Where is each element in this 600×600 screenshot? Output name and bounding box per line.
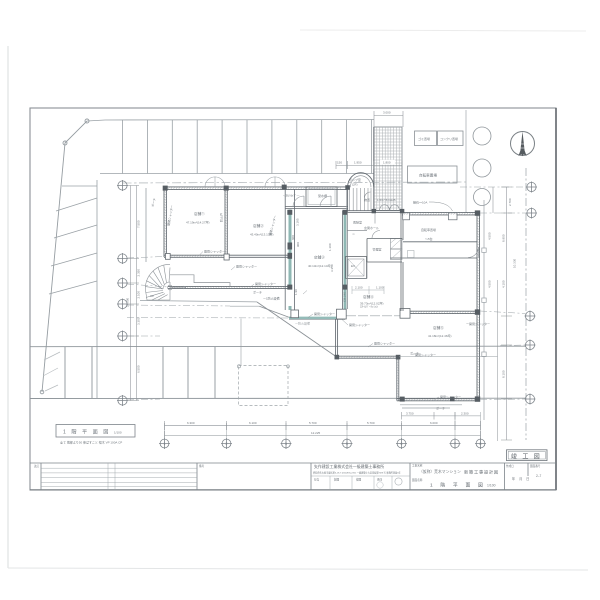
svg-text:4.500: 4.500 bbox=[488, 280, 492, 288]
svg-text:6.100: 6.100 bbox=[249, 421, 257, 425]
svg-text:係印: 係印 bbox=[377, 478, 383, 482]
svg-text:1.90: 1.90 bbox=[294, 289, 298, 295]
svg-text:灬: 灬 bbox=[352, 231, 355, 235]
svg-text:検図: 検図 bbox=[356, 478, 362, 482]
svg-text:縁石〜10A: 縁石〜10A bbox=[413, 200, 427, 205]
svg-text:コンクリ置場: コンクリ置場 bbox=[440, 136, 458, 141]
svg-text:年 月 日: 年 月 日 bbox=[512, 476, 531, 481]
svg-text:40.13m²(12.14坪): 40.13m²(12.14坪) bbox=[308, 263, 332, 268]
svg-text:4.500: 4.500 bbox=[488, 232, 492, 240]
svg-text:開閉シャッター: 開閉シャッター bbox=[236, 264, 257, 269]
svg-text:製図: 製図 bbox=[334, 478, 340, 482]
svg-text:2.100: 2.100 bbox=[137, 291, 141, 299]
svg-text:ポーチ: ポーチ bbox=[253, 290, 262, 295]
svg-text:7.500: 7.500 bbox=[137, 220, 141, 228]
svg-text:1/100: 1/100 bbox=[487, 484, 496, 488]
svg-text:6.000: 6.000 bbox=[430, 421, 438, 425]
svg-text:5.700: 5.700 bbox=[309, 421, 317, 425]
svg-text:(2F): (2F) bbox=[352, 183, 358, 187]
svg-text:2.300: 2.300 bbox=[461, 411, 469, 415]
svg-text:備考: 備考 bbox=[199, 464, 205, 468]
svg-text:5.700: 5.700 bbox=[367, 421, 375, 425]
svg-text:2.100: 2.100 bbox=[355, 286, 363, 290]
svg-text:矢作建設工業株式会社一級建築士事務所: 矢作建設工業株式会社一級建築士事務所 bbox=[314, 464, 384, 469]
svg-text:2.700: 2.700 bbox=[508, 198, 512, 206]
svg-text:2: 2 bbox=[226, 442, 228, 446]
svg-text:3: 3 bbox=[285, 442, 287, 446]
svg-text:8.900: 8.900 bbox=[502, 234, 506, 242]
svg-text:防火戸: 防火戸 bbox=[219, 213, 224, 222]
svg-text:3.300: 3.300 bbox=[137, 317, 141, 325]
svg-text:900: 900 bbox=[296, 242, 300, 247]
svg-text:全て 端部より50 伸ばすこと 幅木 VP 100A C: 全て 端部より50 伸ばすこと 幅木 VP 100A CP bbox=[60, 440, 122, 445]
svg-text:店舗②: 店舗② bbox=[253, 223, 264, 228]
svg-text:2–7: 2–7 bbox=[536, 474, 542, 478]
svg-text:開閉シャッター: 開閉シャッター bbox=[314, 311, 335, 316]
svg-text:新築工事設計図: 新築工事設計図 bbox=[464, 469, 499, 476]
svg-text:改訂: 改訂 bbox=[34, 464, 40, 468]
svg-text:41.18m²(12.46坪): 41.18m²(12.46坪) bbox=[428, 333, 452, 338]
svg-text:2.350: 2.350 bbox=[137, 269, 141, 277]
svg-text:受水槽: 受水槽 bbox=[318, 193, 327, 198]
svg-text:（仮称）荒木マンション: （仮称）荒木マンション bbox=[419, 469, 461, 474]
svg-text:ポンプ室: ポンプ室 bbox=[349, 177, 361, 182]
svg-text:3.000: 3.000 bbox=[383, 111, 391, 115]
svg-text:担当: 担当 bbox=[314, 478, 320, 482]
svg-text:図面番号: 図面番号 bbox=[530, 464, 541, 468]
svg-text:ｰﾒﾀﾙﾊﾗｲﾄﾞｰｰ: ｰﾒﾀﾙﾊﾗｲﾄﾞｰｰ bbox=[283, 193, 300, 198]
svg-text:6.300: 6.300 bbox=[187, 421, 195, 425]
svg-text:開閉シャッター: 開閉シャッター bbox=[349, 322, 370, 327]
svg-text:8: 8 bbox=[480, 442, 482, 446]
svg-text:1/100: 1/100 bbox=[114, 430, 122, 434]
svg-text:10.330: 10.330 bbox=[513, 258, 517, 268]
svg-text:店舗④: 店舗④ bbox=[363, 294, 374, 299]
svg-text:7: 7 bbox=[454, 442, 456, 446]
svg-text:3.185: 3.185 bbox=[296, 218, 300, 226]
svg-text:ポーチ: ポーチ bbox=[436, 406, 445, 411]
svg-text:自転車置場: 自転車置場 bbox=[419, 173, 437, 178]
svg-text:600: 600 bbox=[291, 235, 295, 240]
svg-text:39.73m²(12.02坪): 39.73m²(12.02坪) bbox=[360, 301, 384, 306]
svg-text:開閉シャッター: 開閉シャッター bbox=[374, 341, 395, 346]
svg-text:EV: EV bbox=[351, 264, 355, 268]
svg-text:自転車置場: 自転車置場 bbox=[421, 227, 436, 232]
svg-text:5: 5 bbox=[346, 442, 348, 446]
svg-text:〜5台: 〜5台 bbox=[425, 236, 433, 241]
svg-text:1.950: 1.950 bbox=[354, 161, 362, 165]
svg-text:1.800: 1.800 bbox=[383, 161, 391, 165]
svg-text:ー1防火設備: ー1防火設備 bbox=[263, 296, 280, 301]
svg-text:開閉シャッター: 開閉シャッター bbox=[204, 249, 225, 254]
svg-text:開閉シャッター: 開閉シャッター bbox=[440, 394, 461, 399]
svg-text:1 階 平 面 図: 1 階 平 面 図 bbox=[63, 427, 110, 435]
svg-text:風除室: 風除室 bbox=[353, 220, 362, 225]
svg-text:店舗①: 店舗① bbox=[194, 211, 205, 216]
svg-text:竣工図: 竣工図 bbox=[511, 453, 545, 461]
svg-text:1: 1 bbox=[164, 442, 166, 446]
svg-text:店舗③: 店舗③ bbox=[314, 255, 325, 260]
svg-text:1.100: 1.100 bbox=[328, 243, 332, 251]
svg-text:工事名称: 工事名称 bbox=[412, 464, 423, 468]
svg-text:開閉シャッター: 開閉シャッター bbox=[255, 281, 276, 286]
svg-text:管理室: 管理室 bbox=[373, 247, 382, 252]
svg-text:ゴミ置場: ゴミ置場 bbox=[418, 136, 430, 141]
svg-text:6.500: 6.500 bbox=[137, 365, 141, 373]
svg-text:ー開閉シャッター: ー開閉シャッター bbox=[412, 352, 436, 357]
svg-text:4.100: 4.100 bbox=[502, 280, 506, 288]
svg-text:1.100: 1.100 bbox=[376, 286, 384, 290]
svg-text:ー防火設備: ー防火設備 bbox=[295, 321, 310, 326]
svg-text:6: 6 bbox=[401, 442, 403, 446]
svg-text:1.5X7.5=1125: 1.5X7.5=1125 bbox=[377, 198, 396, 202]
svg-text:玄関ホール: 玄関ホール bbox=[364, 225, 379, 230]
svg-text:UP: UP bbox=[150, 294, 154, 298]
svg-text:店舗⑤: 店舗⑤ bbox=[433, 325, 444, 330]
svg-text:12.225: 12.225 bbox=[311, 431, 321, 435]
svg-text:物置: 物置 bbox=[364, 197, 370, 202]
svg-text:1 階 平 面 図: 1 階 平 面 図 bbox=[430, 482, 486, 489]
svg-text:CB 240: CB 240 bbox=[343, 292, 347, 302]
svg-text:3.750: 3.750 bbox=[406, 411, 414, 415]
svg-text:47.19m²(14.27坪): 47.19m²(14.27坪) bbox=[186, 220, 210, 225]
svg-text:150: 150 bbox=[337, 161, 342, 165]
svg-text:作成日: 作成日 bbox=[506, 464, 514, 468]
svg-text:ー開閉シャッター: ー開閉シャッター bbox=[466, 321, 490, 326]
svg-text:図面名称: 図面名称 bbox=[412, 478, 423, 482]
svg-text:27.000: 27.000 bbox=[126, 297, 130, 307]
svg-text:8.100: 8.100 bbox=[502, 370, 506, 378]
